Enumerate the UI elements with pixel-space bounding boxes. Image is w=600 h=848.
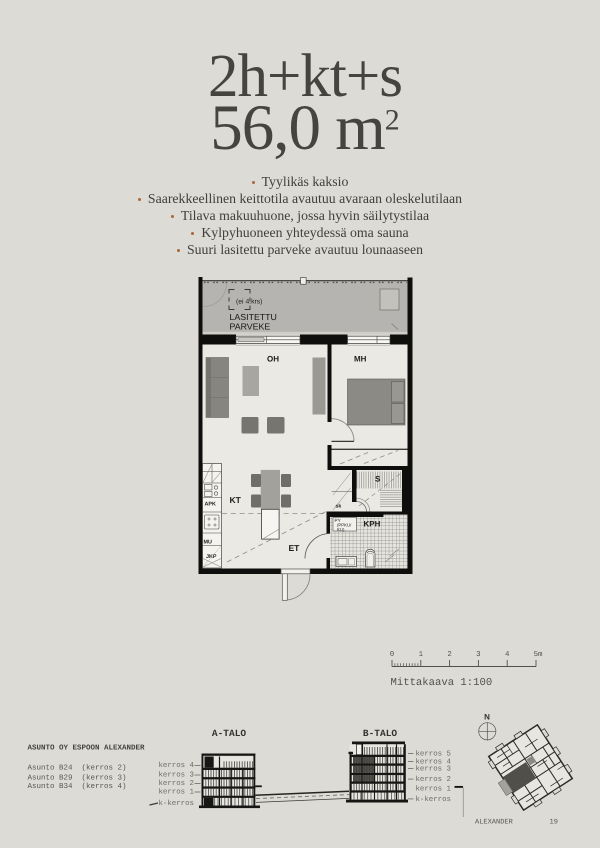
svg-text:kerros 2: kerros 2 xyxy=(159,779,194,788)
svg-text:ASUNTO OY ESPOON ALEXANDER: ASUNTO OY ESPOON ALEXANDER xyxy=(28,744,146,753)
svg-text:0: 0 xyxy=(390,651,394,659)
svg-text:19: 19 xyxy=(550,818,558,826)
svg-text:sk: sk xyxy=(336,504,342,510)
svg-text:LASITETTU: LASITETTU xyxy=(230,312,277,322)
svg-text:B-TALO: B-TALO xyxy=(363,728,398,739)
svg-text:kerros 3: kerros 3 xyxy=(159,771,194,780)
svg-text:2: 2 xyxy=(447,651,451,659)
svg-text:kerros 2: kerros 2 xyxy=(416,775,451,784)
svg-text:Asunto B29 (kerros 3): Asunto B29 (kerros 3) xyxy=(28,773,127,782)
svg-text:KU): KU) xyxy=(337,527,345,532)
svg-text:OH: OH xyxy=(267,355,279,364)
svg-text:APK: APK xyxy=(205,502,216,508)
svg-text:MU: MU xyxy=(204,539,212,545)
svg-text:KPH: KPH xyxy=(364,520,381,529)
svg-text:Asunto B34 (kerros 4): Asunto B34 (kerros 4) xyxy=(28,782,127,791)
svg-text:5m: 5m xyxy=(534,651,543,659)
svg-text:N: N xyxy=(484,713,490,722)
svg-text:Asunto B24 (kerros 2): Asunto B24 (kerros 2) xyxy=(28,764,127,773)
svg-text:Mittakaava 1:100: Mittakaava 1:100 xyxy=(391,677,493,689)
svg-text:kerros 1: kerros 1 xyxy=(416,784,452,793)
svg-text:kerros 3: kerros 3 xyxy=(416,765,451,774)
svg-text:kerros 1: kerros 1 xyxy=(159,788,195,797)
svg-text:k-kerros: k-kerros xyxy=(416,795,451,804)
svg-text:4: 4 xyxy=(505,651,510,659)
svg-text:3: 3 xyxy=(476,651,480,659)
svg-text:ET: ET xyxy=(289,543,301,553)
svg-text:S: S xyxy=(375,475,381,484)
svg-text:A-TALO: A-TALO xyxy=(212,728,247,739)
svg-text:kerros 5: kerros 5 xyxy=(416,749,451,758)
svg-text:MH: MH xyxy=(354,355,367,364)
svg-text:k-kerros: k-kerros xyxy=(159,799,194,808)
svg-text:kerros 4: kerros 4 xyxy=(159,761,195,770)
svg-text:ALEXANDER: ALEXANDER xyxy=(475,818,514,826)
svg-text:1: 1 xyxy=(419,651,424,659)
svg-text:(ei 4.krs): (ei 4.krs) xyxy=(236,299,262,306)
svg-text:PARVEKE: PARVEKE xyxy=(230,322,271,332)
svg-text:KT: KT xyxy=(230,495,242,505)
